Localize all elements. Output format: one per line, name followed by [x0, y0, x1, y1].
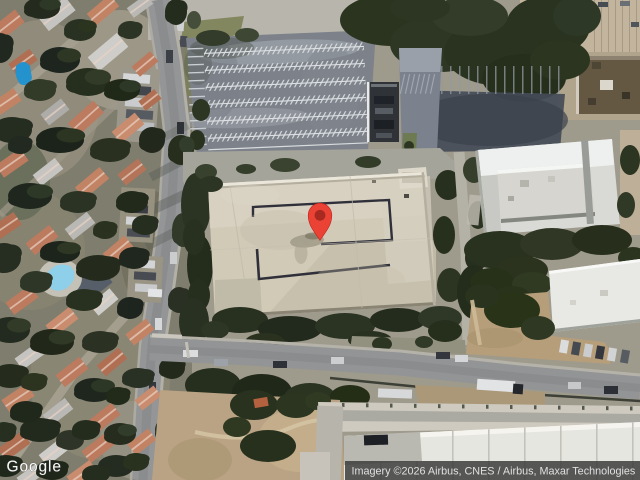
svg-text:Imagery ©2026 Airbus, CNES / A: Imagery ©2026 Airbus, CNES / Airbus, Max…	[352, 466, 636, 478]
svg-text:Google: Google	[7, 459, 62, 476]
